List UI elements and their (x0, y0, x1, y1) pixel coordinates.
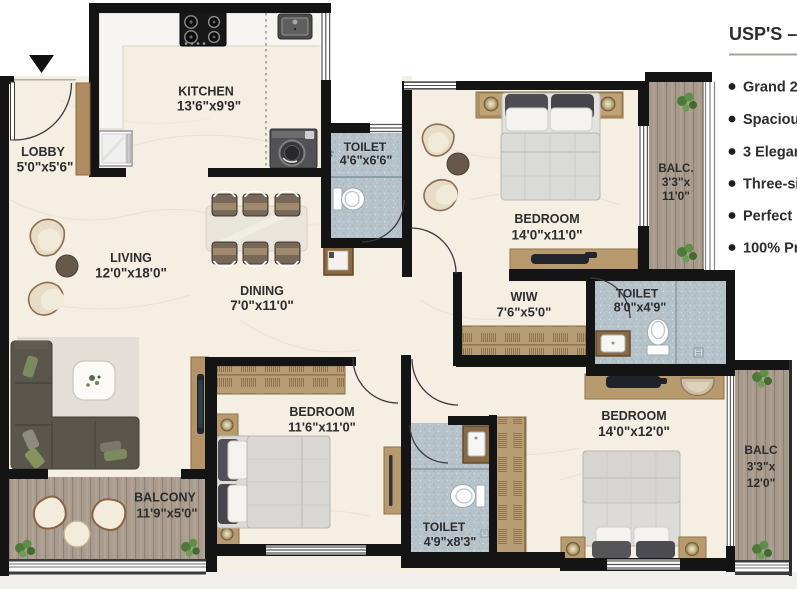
svg-text:Perfect Balance of Luxury: Perfect Balance of Luxury (743, 209, 797, 225)
svg-text:LIVING: LIVING (110, 251, 152, 265)
svg-text:BALC.: BALC. (658, 163, 693, 175)
svg-text:7'6"x5'0": 7'6"x5'0" (497, 305, 552, 320)
svg-text:BEDROOM: BEDROOM (289, 405, 354, 419)
svg-text:8'0"x4'9": 8'0"x4'9" (614, 301, 667, 315)
svg-text:7'0"x11'0": 7'0"x11'0" (230, 298, 294, 313)
svg-text:BALCONY: BALCONY (134, 491, 196, 505)
svg-text:4'6"x6'6": 4'6"x6'6" (340, 154, 393, 168)
svg-text:5'0"x5'6": 5'0"x5'6" (17, 160, 74, 175)
svg-text:Three-side Open Homes: Three-side Open Homes (743, 177, 797, 193)
svg-text:TOILET: TOILET (423, 520, 466, 534)
svg-text:BALC: BALC (744, 443, 778, 457)
svg-text:12'0": 12'0" (747, 476, 776, 490)
svg-text:3'3"x: 3'3"x (747, 460, 776, 474)
svg-text:13'6"x9'9": 13'6"x9'9" (177, 99, 241, 114)
svg-text:KITCHEN: KITCHEN (178, 85, 234, 99)
svg-text:BEDROOM: BEDROOM (601, 409, 666, 423)
svg-text:4'9"x8'3": 4'9"x8'3" (424, 535, 477, 549)
svg-text:USP'S –: USP'S – (729, 24, 797, 44)
svg-text:3 Elegant Bedrooms: 3 Elegant Bedrooms (743, 145, 797, 161)
svg-text:3'3"x: 3'3"x (662, 175, 691, 189)
svg-text:TOILET: TOILET (344, 140, 387, 154)
svg-text:11'0": 11'0" (662, 189, 690, 203)
svg-text:12'0"x18'0": 12'0"x18'0" (95, 266, 167, 281)
svg-text:Grand 2 & 3 BHK Homes: Grand 2 & 3 BHK Homes (743, 80, 797, 96)
svg-text:100% Privacy Ensured: 100% Privacy Ensured (743, 241, 797, 257)
svg-text:BEDROOM: BEDROOM (514, 212, 579, 226)
svg-text:WIW: WIW (510, 290, 537, 304)
svg-text:DINING: DINING (240, 284, 284, 298)
svg-text:TOILET: TOILET (616, 287, 659, 301)
svg-text:11'9"x5'0": 11'9"x5'0" (136, 506, 197, 521)
svg-text:Spacious Living Areas: Spacious Living Areas (743, 112, 797, 128)
svg-text:LOBBY: LOBBY (21, 145, 65, 159)
svg-text:14'0"x12'0": 14'0"x12'0" (598, 424, 670, 439)
svg-text:14'0"x11'0": 14'0"x11'0" (511, 228, 582, 243)
svg-text:11'6"x11'0": 11'6"x11'0" (288, 420, 356, 435)
